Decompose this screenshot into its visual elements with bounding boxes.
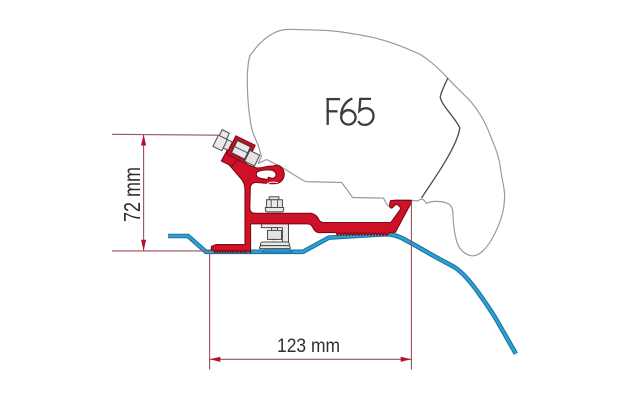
svg-text:123 mm: 123 mm xyxy=(277,335,340,357)
svg-text:72 mm: 72 mm xyxy=(119,167,145,222)
